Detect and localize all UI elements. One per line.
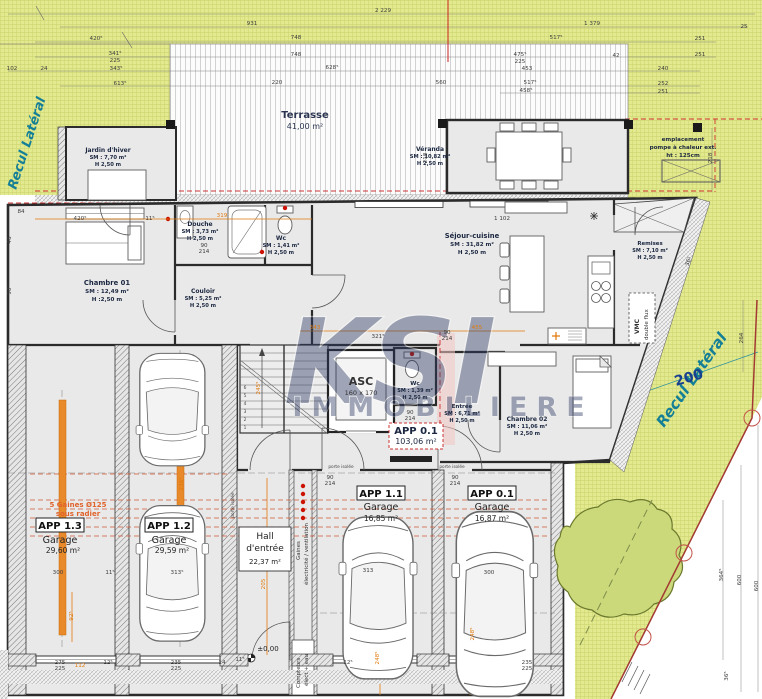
room-name: Jardin d'hiver: [84, 147, 130, 154]
dimension-label: 455: [472, 325, 483, 331]
room-sm: SM : 12,49 m²: [85, 288, 129, 295]
room-name: ASC: [349, 375, 374, 388]
garage-area: 29,59 m²: [155, 546, 189, 555]
room-sm: SM : 11,06 m²: [507, 424, 547, 430]
room-name: Véranda: [416, 146, 444, 153]
dimension-label: 248⁵: [374, 652, 381, 665]
post: [166, 120, 175, 129]
dimension-label: 220: [272, 80, 283, 86]
light-icon: [590, 212, 598, 220]
dimension-label: 11⁵: [235, 656, 244, 663]
dimension-label: 420⁵: [90, 35, 103, 42]
dining-table: [496, 132, 562, 180]
dimension-label: 628⁵: [326, 64, 339, 71]
dimension-label: 112: [75, 663, 86, 669]
floor-plan: 1 2 3 4 5 6: [0, 0, 762, 699]
room-name: Wc: [410, 381, 420, 387]
post: [624, 120, 633, 129]
room-sm: SM : 6,71 m²: [444, 411, 480, 417]
dimension-label: 2 229: [375, 8, 391, 14]
pompe-label: pompe à chaleur ext.: [650, 144, 717, 151]
dimension-label: 560: [436, 80, 447, 86]
room-h: H 2,50 m: [637, 255, 662, 261]
room-h: H 2,50 m: [402, 395, 427, 401]
dimension-label: 300: [53, 570, 64, 576]
toilet-wc1: [277, 206, 293, 234]
svg-text:5: 5: [244, 393, 247, 399]
dimension-label: 205: [261, 578, 267, 589]
vmc-box: [629, 293, 655, 343]
watermark-name: IMMOBILIERE: [292, 392, 593, 423]
dimension-label: 313: [363, 568, 374, 574]
dimension-label: 251: [695, 36, 706, 42]
dimension-label: 24: [40, 66, 48, 72]
room-name: Entrée: [452, 403, 473, 410]
gaines-vertical-label: électricité / ventilation: [303, 523, 310, 585]
bench: [390, 456, 432, 462]
terrasse-name: Terrasse: [281, 110, 329, 121]
dimension-label: 214: [325, 481, 336, 487]
room-h: H 2,50 m: [268, 250, 294, 256]
dimension-label: 517⁵: [550, 34, 563, 41]
porte-isolee-label: porte isolée: [229, 492, 236, 518]
porte-isolee-label: porte isolée: [328, 463, 354, 470]
pompe-label: emplacement: [662, 137, 705, 143]
garage-area: 16,87 m²: [475, 514, 509, 523]
car-icon: [136, 353, 209, 465]
room-h: H 2,50 m: [458, 250, 486, 256]
post: [438, 119, 447, 128]
svg-text:1: 1: [244, 425, 247, 431]
compteurs-label: élect + eau: [303, 654, 310, 686]
apartment-area: 103,06 m²: [395, 437, 437, 446]
dimension-label: 248⁵: [469, 628, 476, 641]
room-name: d'entrée: [246, 543, 284, 554]
label-asc: ASC 160 x 170: [345, 375, 378, 397]
porte-isolee-label: porte isolée: [439, 463, 465, 470]
terrasse-area: 41,00 m²: [287, 122, 323, 131]
label-remises: Remises SM : 7,10 m² H 2,50 m: [632, 241, 668, 261]
dimension-label: 218: [423, 152, 429, 163]
level-label: ±0,00: [257, 645, 278, 653]
garage-name: APP 0.1: [470, 489, 514, 500]
dimension-label: 251: [695, 52, 706, 58]
gaines5-label: 5 Gaines Ø125: [49, 501, 106, 509]
water-point: [283, 206, 287, 210]
room-name: Chambre 01: [84, 279, 130, 287]
dimension-label: 225: [110, 58, 121, 64]
room-sm: SM : 5,25 m²: [185, 296, 222, 302]
room-name: Séjour-cuisine: [445, 232, 500, 240]
room-h: H 2,50 m: [187, 236, 213, 242]
dimension-label: 321⁵: [372, 333, 385, 340]
dimension-label: 214: [450, 481, 461, 487]
dimension-label: 475⁵: [514, 51, 527, 58]
room-sm: SM : 1,41 m²: [263, 243, 300, 249]
dimension-label: 46: [7, 236, 13, 244]
dimension-label: 240: [658, 66, 669, 72]
post: [693, 123, 702, 132]
dimension-label: 343⁵: [110, 65, 123, 72]
room-h: H 2,50 m: [417, 161, 443, 167]
svg-text:4: 4: [244, 401, 247, 407]
dimension-label: 225: [515, 59, 526, 65]
room-sm: SM : 7,70 m²: [90, 155, 127, 161]
garage-type: Garage: [364, 502, 399, 513]
garage-type: Garage: [152, 535, 187, 546]
dimension-label: 517⁵: [524, 79, 537, 86]
dimension-label: 225: [522, 666, 533, 672]
room-name: Chambre 02: [507, 416, 548, 423]
room-h: H :2,50 m: [92, 297, 123, 303]
vmc-label: double flux: [644, 309, 650, 340]
garage-area: 16,85 m²: [364, 514, 398, 523]
gaines5-label: sous radier: [56, 510, 101, 518]
dimension-label: 12⁵: [103, 659, 112, 666]
vmc-label: VMC: [634, 318, 641, 334]
dimension-label: 319: [217, 213, 228, 219]
room-sm: SM : 1,39 m²: [397, 388, 433, 394]
room-h: H 2,50 m: [190, 303, 216, 309]
room-sm: SM : 10,82 m²: [410, 154, 450, 160]
room-area: 22,37 m²: [249, 558, 281, 566]
pompe-label: ht : 125cm: [666, 153, 700, 159]
dimension-label: 252: [658, 81, 669, 87]
garage-name: APP 1.3: [38, 521, 82, 532]
dimension-label: 1 102: [494, 216, 510, 222]
dimension-label: 300: [484, 570, 495, 576]
room-h: H 2,50 m: [449, 418, 474, 424]
dimension-label: 102: [7, 66, 18, 72]
svg-text:2: 2: [244, 417, 247, 423]
room-h: H 2,50 m: [514, 431, 540, 437]
room-name: Hall: [256, 532, 273, 542]
dimension-label: 11⁵: [105, 569, 114, 576]
label-garage11: APP 1.1 Garage 16,85 m²: [357, 486, 405, 523]
room-name: Couloir: [191, 288, 215, 295]
shower: [228, 206, 266, 258]
dimension-label: 748: [291, 35, 302, 41]
dimension-label: 14: [218, 660, 226, 666]
garage-name: APP 1.1: [359, 489, 403, 500]
dimension-label: 600: [754, 580, 760, 591]
apartment-name: APP 0.1: [394, 426, 438, 437]
dimension-label: 214: [442, 336, 453, 342]
dimension-label: 42: [612, 53, 619, 59]
dimension-label: 931: [247, 21, 258, 27]
dimension-label: 313⁵: [171, 569, 184, 576]
dimension-label: 214: [199, 249, 210, 255]
dimension-label: 458⁵: [520, 87, 533, 94]
dimension-label: 245⁵: [255, 382, 262, 395]
dimension-label: 225: [171, 666, 182, 672]
room-sm: SM : 31,82 m²: [450, 241, 494, 248]
dimension-label: 600: [737, 574, 743, 585]
gaines-vertical-label: Gaines: [296, 541, 302, 560]
dimension-label: 364⁵: [718, 569, 725, 582]
room-h: H 2,50 m: [95, 162, 121, 168]
dimension-label: 264: [739, 332, 745, 343]
garage-area: 29,60 m²: [46, 546, 80, 555]
dimension-label: 90⁷: [6, 285, 13, 294]
dimension-label: 25: [740, 24, 748, 30]
gravel-corner: [0, 650, 8, 699]
compteurs-label: Compteurs: [296, 658, 302, 688]
dimension-label: 84: [17, 209, 25, 215]
garage-type: Garage: [475, 502, 510, 513]
label-hall: Hall d'entrée 22,37 m²: [239, 527, 291, 571]
corner-storage: [614, 198, 694, 232]
svg-text:3: 3: [244, 409, 247, 415]
room-sm: SM : 3,73 m²: [182, 229, 219, 235]
garage-type: Garage: [43, 535, 78, 546]
dimension-label: 1 379: [584, 21, 600, 27]
room-name: Wc: [276, 235, 287, 242]
dimension-label: 420⁵: [74, 215, 87, 222]
dimension-label: 218: [708, 152, 714, 163]
room-dims: 160 x 170: [345, 389, 378, 397]
room-veranda: [447, 120, 628, 193]
dimension-label: 12⁵: [343, 659, 352, 666]
dimension-label: 341⁵: [109, 50, 122, 57]
svg-text:6: 6: [244, 385, 247, 391]
dimension-label: 343: [310, 325, 321, 331]
dimension-label: 225: [55, 666, 66, 672]
label-app01: APP 0.1 103,06 m²: [389, 423, 443, 449]
dimension-label: 214: [405, 416, 416, 422]
dimension-label: 453: [522, 66, 533, 72]
garage-name: APP 1.2: [147, 521, 191, 532]
dimension-label: 92⁵: [68, 611, 75, 620]
dimension-label: 748: [291, 52, 302, 58]
room-name: Douche: [187, 221, 212, 228]
dimension-label: 36⁵: [723, 671, 730, 680]
label-garage01: APP 0.1 Garage 16,87 m²: [468, 486, 516, 523]
dimension-label: 613⁵: [114, 80, 127, 87]
water-point: [260, 250, 264, 254]
dimension-label: 251: [658, 89, 669, 95]
room-sm: SM : 7,10 m²: [632, 248, 668, 254]
room-name: Remises: [637, 241, 662, 247]
dimension-label: 236⁵: [178, 478, 185, 491]
dimension-label: 11⁵: [145, 215, 154, 222]
